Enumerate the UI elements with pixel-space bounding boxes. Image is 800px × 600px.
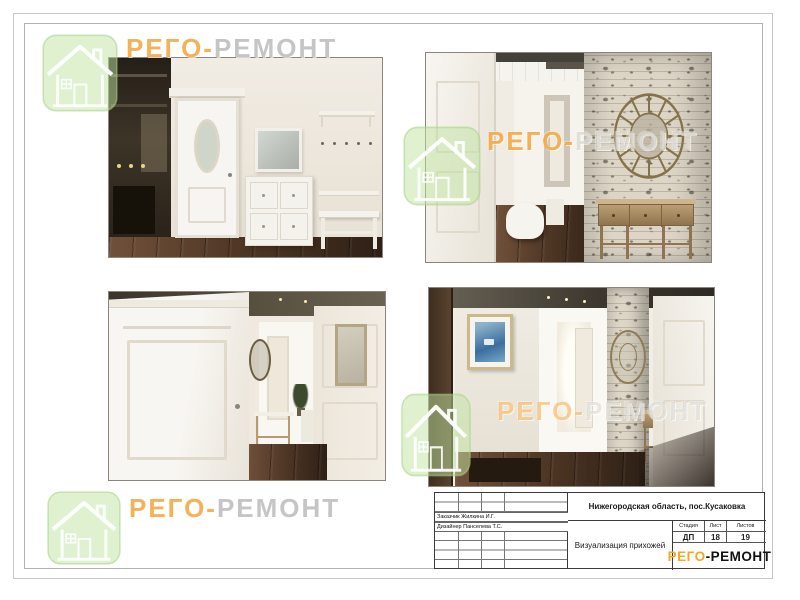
- watermark-suffix: РЕМОНТ: [214, 33, 337, 63]
- gold-console-table: [596, 199, 696, 261]
- logo-suffix: -РЕМОНТ: [706, 549, 772, 564]
- client-row: Заказчик Жилкина И.Г.: [435, 512, 568, 522]
- framed-mirror: [335, 324, 367, 386]
- house-icon: [401, 124, 483, 208]
- door-handle: [235, 404, 240, 409]
- coat-hooks: [321, 142, 375, 145]
- watermark-text: РЕГО-РЕМОНТ: [487, 126, 698, 157]
- house-icon: [45, 489, 123, 567]
- render-door-corridor-view: [108, 291, 386, 481]
- floor-mat: [469, 458, 541, 482]
- door-oval-glass: [194, 119, 220, 173]
- drawing-title: Визуализация прихожей: [568, 521, 673, 570]
- watermark-prefix: РЕГО-: [126, 33, 214, 63]
- house-icon: [399, 391, 473, 479]
- render-entrance-view: [108, 57, 383, 258]
- plant: [292, 384, 309, 411]
- white-dresser: [245, 176, 313, 246]
- entrance-door: [169, 88, 245, 98]
- company-logo: РЕГО-РЕМОНТ: [673, 543, 766, 570]
- stage-label: Стадия: [673, 521, 705, 531]
- coat-shelf: [319, 111, 375, 117]
- round-mirror: [249, 339, 271, 381]
- sheets-label: Листов: [727, 521, 764, 531]
- stage-value: ДП: [673, 532, 705, 542]
- white-pouf: [506, 203, 544, 239]
- hall-bench: [319, 191, 379, 251]
- watermark-suffix: РЕМОНТ: [585, 396, 708, 426]
- watermark-text: РЕГО-РЕМОНТ: [129, 493, 340, 524]
- door-handle: [228, 173, 232, 177]
- designer-row: Дизайнер Панселева Т.С.: [435, 522, 568, 532]
- foreground-door: [109, 292, 249, 481]
- watermark-prefix: РЕГО-: [497, 396, 585, 426]
- logo-prefix: РЕГО: [668, 549, 706, 564]
- design-sheet: РЕГО-РЕМОНТ РЕГО-РЕМОНТ РЕГО-РЕМОНТ РЕГО…: [0, 0, 800, 600]
- watermark-suffix: РЕМОНТ: [575, 126, 698, 156]
- sheet-label: Лист: [705, 521, 727, 531]
- watermark-text: РЕГО-РЕМОНТ: [126, 33, 337, 64]
- framed-picture: [467, 314, 513, 370]
- watermark-prefix: РЕГО-: [487, 126, 575, 156]
- wall-mirror: [255, 128, 302, 172]
- wood-floor: [247, 444, 327, 481]
- round-mirror: [610, 330, 646, 384]
- sheet-info: Стадия Лист Листов ДП 18 19 РЕГО-РЕМОНТ: [673, 521, 766, 570]
- sheet-value: 18: [705, 532, 727, 542]
- watermark-suffix: РЕМОНТ: [217, 493, 340, 523]
- title-block: Заказчик Жилкина И.Г. Дизайнер Панселева…: [434, 492, 765, 569]
- house-icon: [40, 32, 120, 114]
- title-block-signature-grid: Заказчик Жилкина И.Г. Дизайнер Панселева…: [435, 493, 568, 568]
- watermark-prefix: РЕГО-: [129, 493, 217, 523]
- sheets-value: 19: [727, 532, 764, 542]
- watermark-text: РЕГО-РЕМОНТ: [497, 396, 708, 427]
- project-location: Нижегородская область, пос.Кусаковка: [568, 493, 766, 521]
